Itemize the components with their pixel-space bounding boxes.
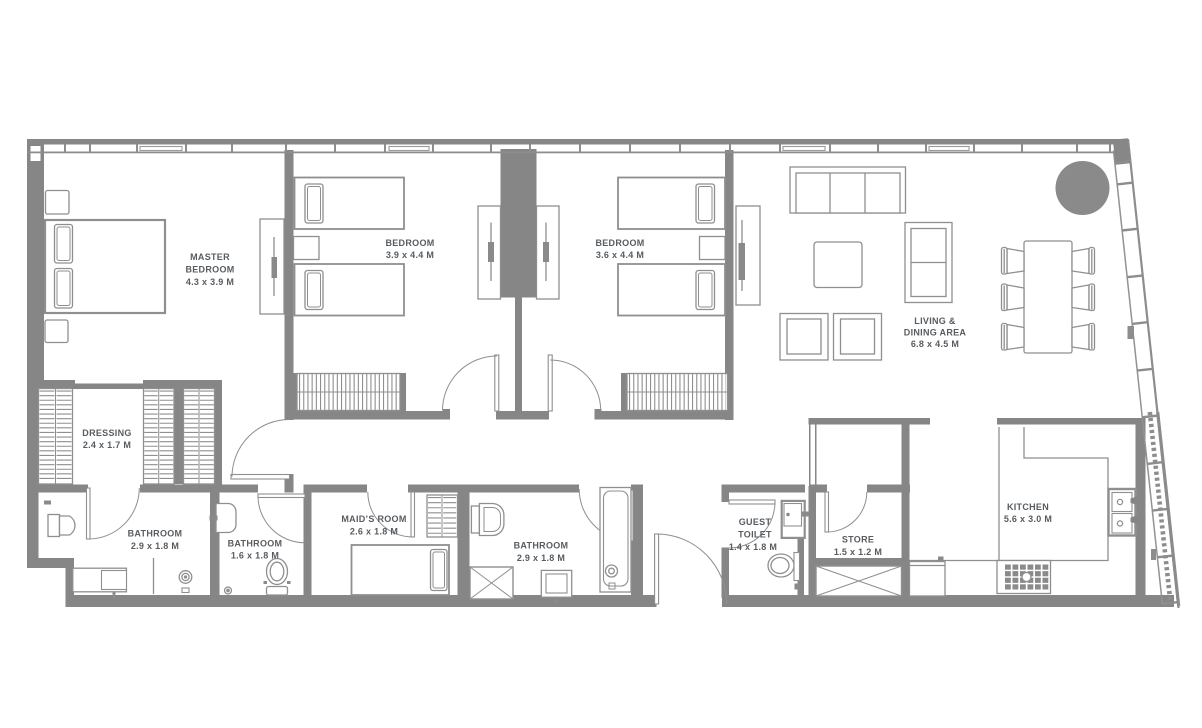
- svg-text:STORE: STORE: [842, 534, 874, 544]
- svg-text:BATHROOM: BATHROOM: [128, 528, 183, 538]
- svg-text:DRESSING: DRESSING: [82, 428, 131, 438]
- svg-text:DINING AREA: DINING AREA: [904, 327, 967, 337]
- svg-text:2.9 x 1.8 M: 2.9 x 1.8 M: [517, 553, 565, 563]
- svg-text:1.5 x 1.2 M: 1.5 x 1.2 M: [834, 547, 882, 557]
- svg-text:1.6 x 1.8 M: 1.6 x 1.8 M: [231, 550, 279, 560]
- svg-text:TOILET: TOILET: [738, 529, 772, 539]
- svg-text:KITCHEN: KITCHEN: [1007, 502, 1049, 512]
- svg-text:BEDROOM: BEDROOM: [595, 238, 644, 248]
- svg-text:1.4 x 1.8 M: 1.4 x 1.8 M: [729, 542, 777, 552]
- svg-text:2.4 x 1.7 M: 2.4 x 1.7 M: [83, 440, 131, 450]
- svg-text:MAID’S ROOM: MAID’S ROOM: [341, 514, 406, 524]
- svg-text:2.6 x 1.8 M: 2.6 x 1.8 M: [350, 526, 398, 536]
- svg-text:4.3 x 3.9 M: 4.3 x 3.9 M: [186, 277, 234, 287]
- svg-text:BEDROOM: BEDROOM: [185, 264, 234, 274]
- svg-text:LIVING &: LIVING &: [914, 316, 956, 326]
- svg-text:3.6 x 4.4 M: 3.6 x 4.4 M: [596, 250, 644, 260]
- svg-text:BATHROOM: BATHROOM: [228, 538, 283, 548]
- svg-text:6.8 x 4.5 M: 6.8 x 4.5 M: [911, 339, 959, 349]
- svg-text:BATHROOM: BATHROOM: [514, 540, 569, 550]
- svg-text:GUEST: GUEST: [739, 517, 772, 527]
- svg-text:MASTER: MASTER: [190, 252, 230, 262]
- svg-text:3.9 x 4.4 M: 3.9 x 4.4 M: [386, 250, 434, 260]
- svg-text:BEDROOM: BEDROOM: [385, 238, 434, 248]
- svg-text:2.9 x 1.8 M: 2.9 x 1.8 M: [131, 541, 179, 551]
- svg-text:5.6 x 3.0 M: 5.6 x 3.0 M: [1004, 514, 1052, 524]
